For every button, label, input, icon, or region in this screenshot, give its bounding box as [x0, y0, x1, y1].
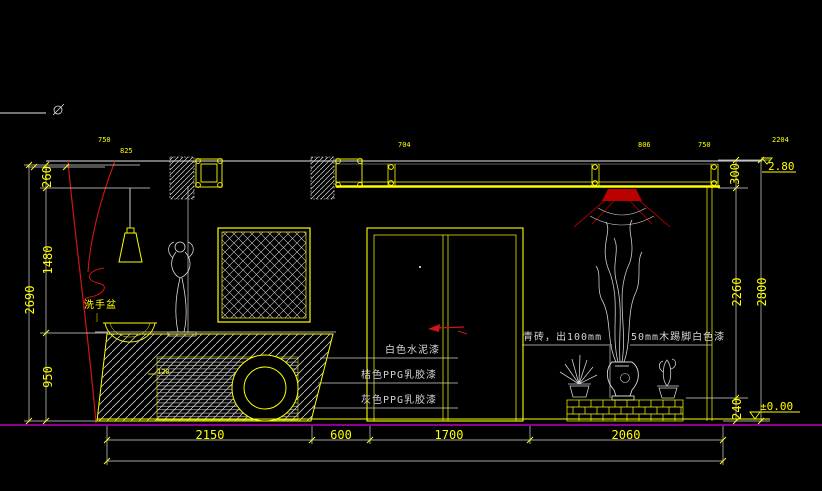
dim-small-top-2: 806 — [638, 142, 651, 149]
level-floor: ±0.00 — [760, 401, 793, 412]
dim-right-2260: 2260 — [731, 278, 743, 307]
dim-left-2690: 2690 — [24, 286, 36, 315]
dim-right-240: 240 — [731, 398, 743, 420]
potted-plant — [560, 355, 597, 397]
reception-counter — [95, 332, 336, 421]
vase — [607, 362, 638, 400]
dim-small-top-1: 704 — [398, 142, 411, 149]
dim-right-300: 300 — [729, 163, 741, 185]
double-door — [367, 228, 523, 421]
spotlight — [574, 189, 670, 227]
cactus — [657, 359, 679, 398]
dim-bottom-1700: 1700 — [435, 429, 464, 441]
ceiling-blocks — [170, 157, 362, 199]
label-washbasin: 洗手盆 — [84, 301, 117, 311]
brick-pedestal — [567, 400, 683, 421]
dim-right-2800: 2800 — [756, 278, 768, 307]
label-paint-white: 白色水泥漆 — [385, 346, 440, 356]
level-ceiling: 2.80 — [768, 161, 795, 172]
note-leader-lines — [522, 345, 712, 398]
label-paint-gray: 灰色PPG乳胶漆 — [361, 396, 437, 406]
right-wall-corner — [707, 187, 712, 421]
dim-bottom-2150: 2150 — [196, 429, 225, 441]
dim-bottom-600: 600 — [330, 429, 352, 441]
ceiling-shelf — [336, 164, 720, 187]
dim-small-top-3: 750 — [698, 142, 711, 149]
label-skirting-note: 50mm木踢脚白色漆 — [631, 333, 725, 343]
dim-left-1480: 1480 — [42, 246, 54, 275]
dim-bottom-2060: 2060 — [612, 429, 641, 441]
decor-panel — [218, 228, 310, 322]
elevation-drawing — [0, 0, 822, 491]
label-paint-orange: 桔色PPG乳胶漆 — [361, 371, 437, 381]
dim-counter-offset: 120 — [157, 369, 170, 376]
cad-elevation-canvas: 260 1480 2690 950 300 2260 2800 240 2150… — [0, 0, 822, 491]
pendant-lamp — [119, 188, 142, 262]
dim-small-left-2: 825 — [120, 148, 133, 155]
wall-ceiling-lines — [0, 104, 762, 333]
sculpture — [168, 242, 196, 336]
label-brick-note: 青砖，出100mm — [523, 333, 602, 343]
dim-small-left-1: 750 — [98, 137, 111, 144]
dim-small-top-4: 2204 — [772, 137, 789, 144]
dim-left-260: 260 — [41, 166, 53, 188]
dim-left-950: 950 — [42, 366, 54, 388]
